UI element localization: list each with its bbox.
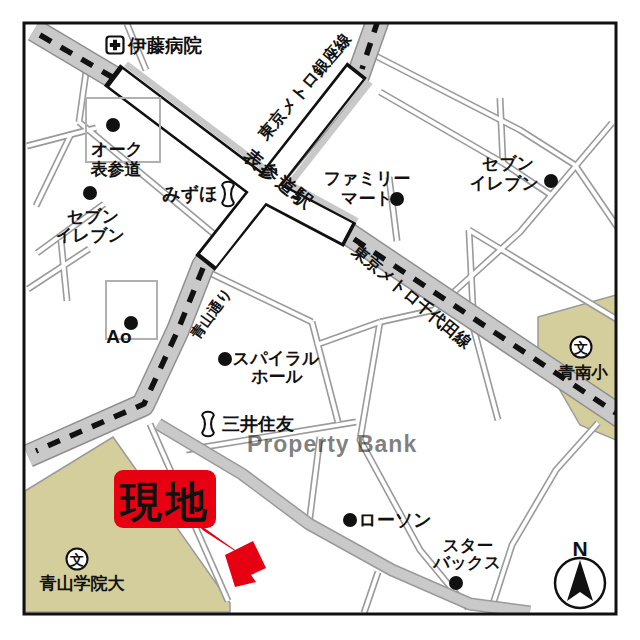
seven-eleven-west-dot bbox=[83, 186, 97, 200]
lawson-dot bbox=[343, 513, 357, 527]
map-screenshot: Property Bank 東京メトロ銀座線 東京メトロ千代田線 表参道駅 青山… bbox=[0, 0, 640, 640]
school-icon: 文 bbox=[67, 549, 88, 570]
hospital-icon bbox=[107, 37, 124, 54]
family-mart-label-2: マート bbox=[341, 189, 393, 208]
spiral-hall-dot bbox=[218, 352, 232, 366]
aoyama-gakuin-label: 青山学院大 bbox=[40, 574, 126, 593]
family-mart-label-1: ファミリー bbox=[324, 169, 411, 188]
seven-eleven-west-label-1: セブン bbox=[67, 207, 119, 226]
spiral-hall-label-1: スパイラル bbox=[233, 349, 321, 368]
ito-hospital-label: 伊藤病院 bbox=[127, 35, 203, 56]
oak-omotesando-label-2: 表参道 bbox=[90, 160, 142, 179]
lawson-label: ローソン bbox=[358, 510, 431, 530]
watermark-text: Property Bank bbox=[247, 431, 417, 457]
seven-eleven-west-label-2: イレブン bbox=[55, 226, 125, 245]
starbucks-label-2: バックス bbox=[432, 553, 501, 571]
seven-eleven-east-dot bbox=[544, 174, 558, 188]
oak-omotesando-label-1: オーク bbox=[91, 140, 143, 159]
mitsui-sumitomo-label: 三井住友 bbox=[222, 414, 294, 434]
starbucks-label-1: スター bbox=[443, 536, 493, 554]
school-icon: 文 bbox=[571, 337, 592, 358]
spiral-hall-label-2: ホール bbox=[251, 367, 303, 386]
site-label: 現地 bbox=[118, 478, 210, 525]
school-icon-glyph: 文 bbox=[69, 552, 84, 568]
seven-eleven-east-label-2: イレブン bbox=[469, 174, 539, 193]
compass-north-label: N bbox=[572, 537, 587, 560]
bank-icon bbox=[222, 182, 233, 207]
map-canvas: Property Bank 東京メトロ銀座線 東京メトロ千代田線 表参道駅 青山… bbox=[0, 0, 640, 640]
seinan-elementary-label: 青南小 bbox=[558, 363, 608, 381]
seven-eleven-east-label-1: セブン bbox=[482, 154, 534, 173]
starbucks-dot bbox=[449, 576, 463, 590]
mizuho-label: みずほ bbox=[162, 184, 217, 205]
oak-omotesando-dot bbox=[106, 118, 120, 132]
school-icon-glyph: 文 bbox=[573, 340, 588, 356]
ao-label: Ao bbox=[106, 326, 131, 347]
bank-icon bbox=[202, 412, 213, 437]
